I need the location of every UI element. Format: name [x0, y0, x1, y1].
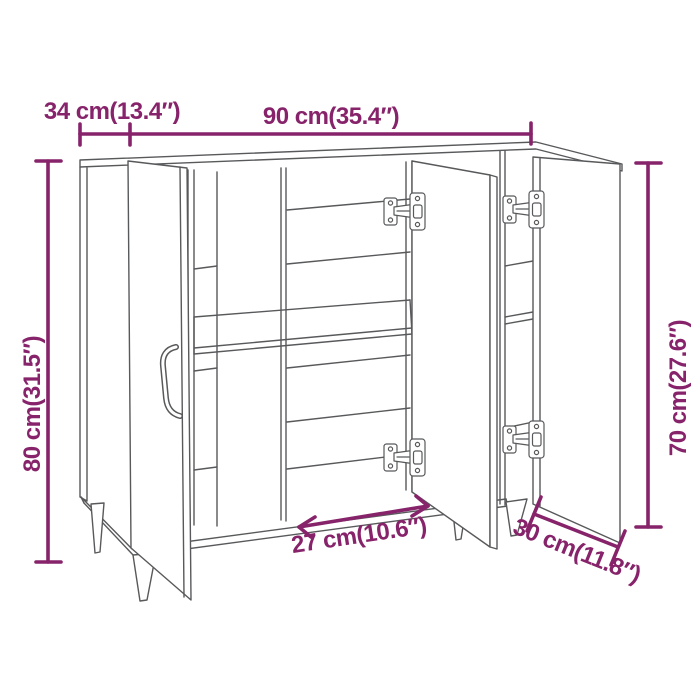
hinge-icon: [384, 439, 425, 476]
product-dimension-image: 34 cm(13.4″) 90 cm(35.4″) 80 cm(31.5″) 7…: [0, 0, 700, 700]
left-door: [128, 161, 191, 600]
dimension-label-top-depth: 34 cm(13.4″): [44, 98, 180, 125]
dimension-label-height: 80 cm(31.5″): [19, 336, 46, 472]
left-side-panel: [80, 167, 87, 501]
hinge-icon: [384, 193, 425, 230]
right-door: [533, 157, 620, 543]
dimension-diagram-svg: 34 cm(13.4″) 90 cm(35.4″) 80 cm(31.5″) 7…: [0, 0, 700, 700]
hinge-icon: [503, 421, 544, 458]
dimension-label-width: 90 cm(35.4″): [263, 103, 399, 130]
dimension-label-door-height: 70 cm(27.6″): [665, 320, 692, 456]
dimension-line-right: [636, 163, 661, 527]
hinge-icon: [503, 191, 544, 228]
dimension-label-bottom-depth: 30 cm(11.8″): [509, 513, 644, 589]
